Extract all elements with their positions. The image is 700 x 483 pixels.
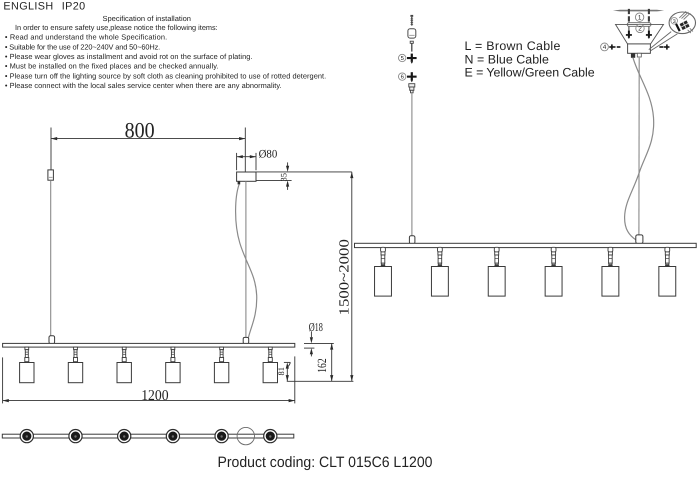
svg-text:ENGLISH: ENGLISH bbox=[3, 1, 53, 13]
svg-text:1500~2000: 1500~2000 bbox=[337, 239, 352, 315]
svg-text:L = Brown Cable: L = Brown Cable bbox=[465, 39, 561, 53]
svg-text:2: 2 bbox=[638, 26, 642, 33]
svg-text:• Suitable for the use of 220~: • Suitable for the use of 220~240V and 5… bbox=[5, 42, 160, 51]
svg-text:• Read and understand the whol: • Read and understand the whole Specific… bbox=[5, 33, 167, 42]
svg-text:4: 4 bbox=[603, 44, 607, 51]
svg-text:5: 5 bbox=[401, 56, 404, 62]
svg-text:In order to ensure safety use,: In order to ensure safety use,please not… bbox=[15, 23, 218, 32]
svg-text:E = Yellow/Green Cable: E = Yellow/Green Cable bbox=[465, 66, 595, 80]
svg-text:1200: 1200 bbox=[141, 388, 168, 404]
svg-text:162: 162 bbox=[315, 358, 329, 373]
svg-text:1: 1 bbox=[638, 15, 642, 22]
svg-text:• Please turn off the lighting: • Please turn off the lighting source by… bbox=[5, 71, 326, 80]
svg-text:Ø18: Ø18 bbox=[309, 320, 323, 334]
svg-text:Specification of installation: Specification of installation bbox=[103, 14, 192, 23]
svg-text:35: 35 bbox=[279, 173, 289, 182]
svg-text:6: 6 bbox=[401, 74, 404, 81]
svg-text:Product coding: CLT 015C6 L120: Product coding: CLT 015C6 L1200 bbox=[218, 454, 433, 471]
svg-text:N = Blue Cable: N = Blue Cable bbox=[465, 52, 549, 66]
svg-text:Ø80: Ø80 bbox=[259, 149, 278, 161]
svg-text:3: 3 bbox=[673, 19, 676, 25]
svg-text:IP20: IP20 bbox=[62, 1, 86, 13]
svg-text:• Please connect with the loca: • Please connect with the local sales se… bbox=[5, 81, 282, 90]
svg-text:800: 800 bbox=[125, 117, 155, 142]
svg-text:• Must be installed on the fix: • Must be installed on the fixed places … bbox=[5, 62, 219, 71]
svg-text:• Please wear gloves as instal: • Please wear gloves as installment and … bbox=[5, 52, 253, 61]
